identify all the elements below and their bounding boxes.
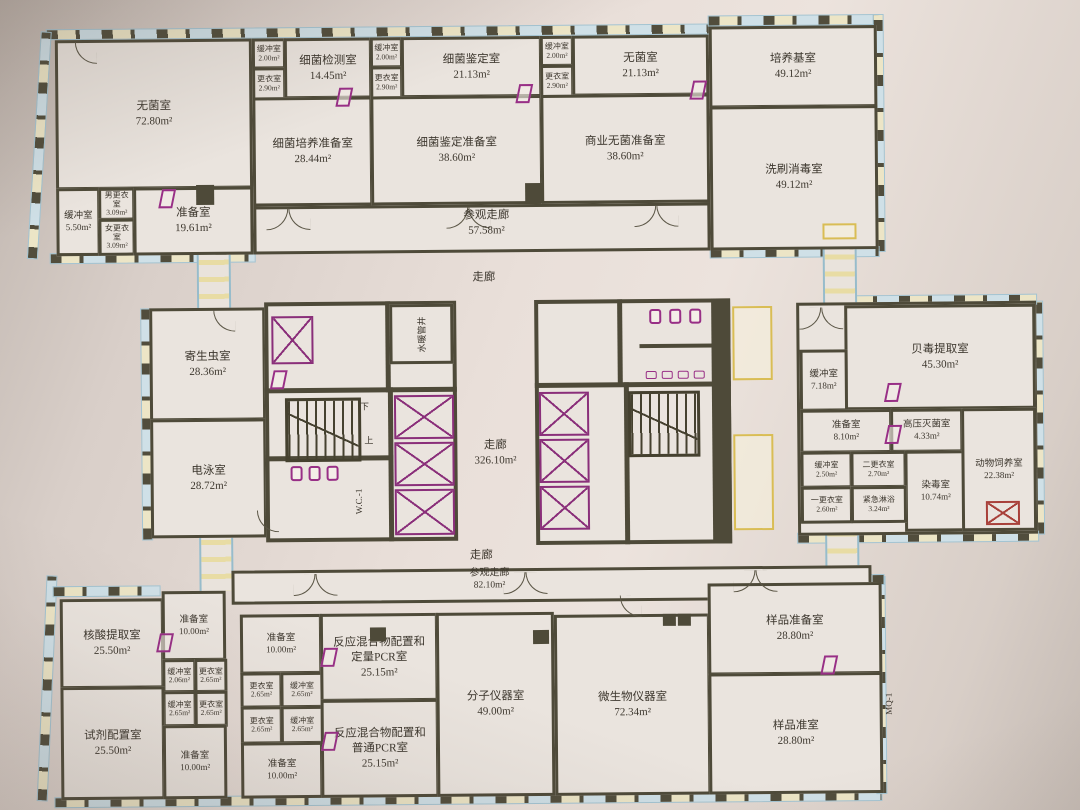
room-area: 49.00m²	[477, 705, 514, 720]
room-buffer-a: 缓冲室 2.00m²	[252, 38, 286, 69]
window-wall-strip	[54, 586, 160, 596]
room-prep-s2-bottom: 准备室 10.00m²	[241, 742, 323, 799]
room-label: 样品准室	[773, 718, 819, 733]
room-area: 4.33m²	[914, 431, 940, 442]
staircase-icon	[628, 391, 701, 458]
room-label: 男更衣室	[101, 192, 132, 209]
room-area: 28.44m²	[294, 152, 331, 167]
room-label: 试剂配置室	[84, 728, 142, 743]
corridor-label: 走廊	[454, 270, 514, 285]
room-label: 缓冲室	[64, 211, 93, 222]
room-area: 28.80m²	[778, 733, 815, 748]
room-pcr-quantitative: 反应混合物配置和定量PCR室 25.15m²	[320, 613, 439, 702]
room-label: 培养基室	[770, 52, 816, 67]
corridor-name: 走廊	[472, 270, 495, 285]
room-area: 28.80m²	[777, 629, 814, 644]
room-area: 45.30m²	[922, 357, 959, 372]
room-changing-s2b: 更衣室 2.65m²	[241, 706, 283, 744]
room-label: 缓冲室	[809, 370, 838, 381]
floorplan-drawing: 无菌室 72.80m² 缓冲室 2.00m² 更衣室 2.90m² 细菌检测室 …	[0, 0, 1080, 810]
room-area: 72.80m²	[136, 115, 173, 130]
room-area: 10.00m²	[267, 770, 297, 781]
toilet-icon	[327, 466, 339, 481]
room-area: 22.38m²	[984, 470, 1014, 481]
room-area: 21.13m²	[453, 67, 490, 82]
drawing-reference-text: MQ-1	[884, 693, 896, 715]
room-area: 2.90m²	[376, 83, 397, 91]
room-area: 5.50m²	[66, 222, 92, 233]
room-changing-c: 更衣室 2.90m²	[540, 65, 574, 98]
room-area: 25.15m²	[362, 756, 399, 771]
room-label: 反应混合物配置和普通PCR室	[330, 726, 430, 757]
wc-text: W.C.-1	[354, 489, 366, 515]
room-label: 动物饲养室	[975, 459, 1023, 470]
room-area: 10.00m²	[266, 644, 296, 655]
toilet-icon	[669, 309, 681, 324]
column-marker	[663, 614, 676, 626]
room-culture-medium: 培养基室 49.12m²	[709, 25, 878, 108]
room-bacteria-culture-prep: 细菌培养准备室 28.44m²	[252, 96, 373, 206]
room-area: 3.24m²	[868, 505, 889, 513]
room-area: 2.65m²	[292, 725, 313, 733]
room-microbiology-instruments: 微生物仪器室 72.34m²	[554, 614, 712, 796]
corridor-label: 走廊 326.10m²	[440, 438, 550, 468]
staircase-icon	[285, 398, 362, 463]
room-area: 25.50m²	[95, 743, 132, 758]
corridor-area: 326.10m²	[474, 453, 516, 468]
room-label: 准备室	[180, 615, 209, 626]
room-label: 高压灭菌室	[903, 420, 951, 431]
room-buffer-east: 缓冲室 7.18m²	[800, 349, 849, 411]
room-pcr-standard: 反应混合物配置和普通PCR室 25.15m²	[321, 699, 440, 798]
toilet-icon	[649, 309, 661, 324]
yellow-partition	[733, 434, 774, 530]
room-electrophoresis: 电泳室 28.72m²	[150, 418, 267, 538]
elevator-x-icon	[394, 395, 454, 440]
room-area: 2.65m²	[200, 676, 221, 684]
stair-up-label: 上	[364, 435, 373, 447]
room-changing-male: 男更衣室 3.09m²	[98, 188, 135, 221]
room-emergency-shower: 紧急淋浴 3.24m²	[851, 486, 907, 523]
toilet-icon	[309, 466, 321, 481]
stair-up-text: 上	[364, 435, 373, 447]
room-changing-s2a: 更衣室 2.65m²	[240, 672, 282, 708]
room-area: 72.34m²	[614, 705, 651, 720]
room-area: 10.74m²	[921, 491, 951, 502]
room-area: 19.61m²	[175, 221, 212, 236]
room-area: 2.50m²	[816, 470, 837, 478]
room-prep-sw-top: 准备室 10.00m²	[162, 591, 227, 662]
corridor-name: 走廊	[484, 438, 507, 453]
room-label: 无菌室	[623, 51, 658, 66]
sink-icon	[646, 371, 657, 379]
corridor-name: 参观走廊	[469, 566, 509, 579]
room-prep-east: 准备室 8.10m²	[800, 409, 892, 454]
room-area: 10.00m²	[179, 626, 209, 637]
room-area: 21.13m²	[622, 66, 659, 81]
room-prep-sw-bottom: 准备室 10.00m²	[163, 725, 228, 800]
room-area: 2.65m²	[169, 709, 190, 717]
corridor-label: 参观走廊 57.58m²	[438, 208, 534, 238]
room-area: 2.90m²	[547, 81, 568, 89]
room-sample-prep-bottom: 样品准室 28.80m²	[708, 672, 883, 795]
floorplan-photo: 无菌室 72.80m² 缓冲室 2.00m² 更衣室 2.90m² 细菌检测室 …	[0, 0, 1080, 810]
column-marker	[533, 630, 549, 644]
column-marker	[678, 614, 691, 626]
room-shellfish-toxin-extraction: 贝毒提取室 45.30m²	[844, 304, 1036, 411]
room-label: 女更衣室	[101, 225, 132, 242]
corridor-name: 走廊	[470, 548, 493, 563]
pipe-shaft: 水暖管井	[389, 304, 454, 365]
room-label: 细菌鉴定室	[443, 52, 501, 67]
link-corridor	[823, 249, 857, 305]
room-changing-sw1: 更衣室 2.65m²	[194, 659, 227, 693]
sink-icon	[678, 371, 689, 379]
room-area: 2.00m²	[546, 51, 567, 59]
equipment-yellow-box	[822, 223, 856, 239]
room-label: 样品准备室	[766, 614, 824, 629]
room-area: 2.65m²	[201, 709, 222, 717]
room-label: 微生物仪器室	[598, 690, 667, 706]
window-wall-strip	[28, 32, 51, 258]
room-area: 25.15m²	[361, 665, 398, 680]
link-corridor	[197, 255, 231, 311]
elevator-x-icon	[539, 392, 589, 436]
room-label: 染毒室	[921, 480, 950, 491]
room-area: 38.60m²	[438, 150, 475, 165]
sink-icon	[694, 371, 705, 379]
pipe-shaft-label: 水暖管井	[415, 316, 428, 352]
room-changing-female: 女更衣室 3.09m²	[98, 219, 135, 256]
room-buffer-d: 缓冲室 2.50m²	[800, 451, 852, 488]
drawing-reference-label: MQ-1	[882, 683, 896, 725]
room-bacteria-identification-prep: 细菌鉴定准备室 38.60m²	[370, 95, 543, 205]
interior-wall	[617, 299, 623, 384]
toilet-icon	[689, 309, 701, 324]
room-aseptic-small: 无菌室 21.13m²	[572, 35, 710, 97]
room-label: 无菌室	[137, 100, 172, 115]
wc-label: W.C.-1	[353, 480, 367, 524]
room-area: 2.65m²	[251, 726, 272, 734]
room-bacteria-testing: 细菌检测室 14.45m²	[284, 37, 373, 99]
room-area: 25.50m²	[94, 644, 131, 659]
room-label: 寄生虫室	[185, 350, 231, 365]
room-label: 分子仪器室	[467, 690, 525, 705]
room-area: 49.12m²	[776, 178, 813, 193]
window-wall-strip	[38, 576, 57, 800]
room-buffer-sw1: 缓冲室 2.06m²	[162, 659, 196, 693]
room-area: 2.06m²	[169, 676, 190, 684]
column-marker	[196, 185, 214, 205]
room-area: 49.12m²	[775, 67, 812, 82]
room-area: 2.00m²	[258, 54, 279, 62]
equipment-x-icon	[986, 501, 1020, 525]
room-prep-s2-top: 准备室 10.00m²	[240, 614, 323, 675]
room-area: 38.60m²	[607, 149, 644, 164]
room-sample-prep-top: 样品准备室 28.80m²	[708, 582, 883, 676]
room-changing-b: 更衣室 2.90m²	[370, 66, 403, 99]
room-buffer-west: 缓冲室 5.50m²	[56, 188, 101, 256]
corridor-label: 参观走廊 82.10m²	[441, 566, 537, 592]
room-label: 准备室	[176, 206, 211, 221]
room-label: 电泳室	[191, 464, 226, 479]
room-label: 细菌培养准备室	[272, 136, 353, 152]
room-label: 准备室	[268, 759, 297, 770]
room-toxin-contamination: 染毒室 10.74m²	[904, 450, 967, 532]
room-commercial-aseptic-prep: 商业无菌准备室 38.60m²	[540, 94, 710, 204]
room-buffer-b: 缓冲室 2.00m²	[370, 37, 403, 68]
corridor-area: 57.58m²	[468, 223, 505, 238]
room-area: 8.10m²	[834, 431, 860, 442]
room-buffer-sw2: 缓冲室 2.65m²	[162, 691, 196, 727]
room-area: 7.18m²	[811, 381, 837, 392]
room-label: 核酸提取室	[83, 629, 141, 644]
link-corridor	[199, 538, 233, 591]
room-area: 28.72m²	[190, 479, 227, 494]
elevator-x-icon	[271, 316, 313, 364]
room-area: 2.00m²	[376, 53, 397, 61]
room-aseptic-main: 无菌室 72.80m²	[55, 39, 253, 191]
room-area: 3.09m²	[106, 209, 127, 217]
corridor-area: 82.10m²	[474, 579, 506, 592]
room-changing-sw2: 更衣室 2.65m²	[194, 691, 227, 727]
room-changing-first: 一更衣室 2.60m²	[801, 486, 853, 523]
yellow-partition	[732, 306, 773, 380]
room-buffer-s2b: 缓冲室 2.65m²	[281, 706, 324, 744]
room-area: 3.09m²	[106, 242, 127, 250]
thick-core-wall	[711, 298, 732, 543]
room-buffer-c: 缓冲室 2.00m²	[540, 36, 574, 67]
room-label: 商业无菌准备室	[585, 134, 666, 150]
corridor-label: 走廊	[451, 548, 511, 563]
room-buffer-s2a: 缓冲室 2.65m²	[280, 672, 323, 708]
room-label: 细菌检测室	[299, 53, 357, 68]
room-area: 2.60m²	[816, 505, 837, 513]
column-marker	[370, 627, 386, 641]
room-area: 2.65m²	[291, 690, 312, 698]
room-changing-second: 二更衣室 2.70m²	[850, 451, 906, 488]
room-area: 14.45m²	[310, 68, 347, 83]
room-changing-a: 更衣室 2.90m²	[252, 67, 286, 100]
sink-icon	[662, 371, 673, 379]
stair-down-text: 下	[360, 401, 369, 413]
room-nucleic-acid-extraction: 核酸提取室 25.50m²	[60, 598, 165, 689]
room-area: 2.70m²	[868, 470, 889, 478]
room-area: 2.90m²	[259, 84, 280, 92]
room-label: 洗刷消毒室	[765, 163, 823, 178]
room-label: 准备室	[181, 751, 210, 762]
room-area: 28.36m²	[189, 365, 226, 380]
window-wall-strip	[709, 15, 879, 25]
room-label: 准备室	[832, 421, 861, 432]
room-area: 2.65m²	[251, 691, 272, 699]
elevator-x-icon	[395, 489, 455, 536]
room-label: 准备室	[267, 634, 296, 645]
room-area: 10.00m²	[180, 762, 210, 773]
elevator-x-icon	[540, 486, 590, 530]
corridor-name: 参观走廊	[463, 208, 509, 223]
room-autoclave: 高压灭菌室 4.33m²	[890, 408, 963, 453]
room-label: 贝毒提取室	[911, 342, 969, 357]
room-prep-west: 准备室 19.61m²	[133, 186, 254, 255]
column-marker	[525, 183, 543, 203]
toilet-icon	[291, 466, 303, 481]
room-reagent-preparation: 试剂配置室 25.50m²	[60, 686, 165, 800]
room-label: 细菌鉴定准备室	[416, 135, 497, 151]
room-parasite: 寄生虫室 28.36m²	[149, 307, 266, 421]
stair-down-label: 下	[360, 401, 369, 413]
